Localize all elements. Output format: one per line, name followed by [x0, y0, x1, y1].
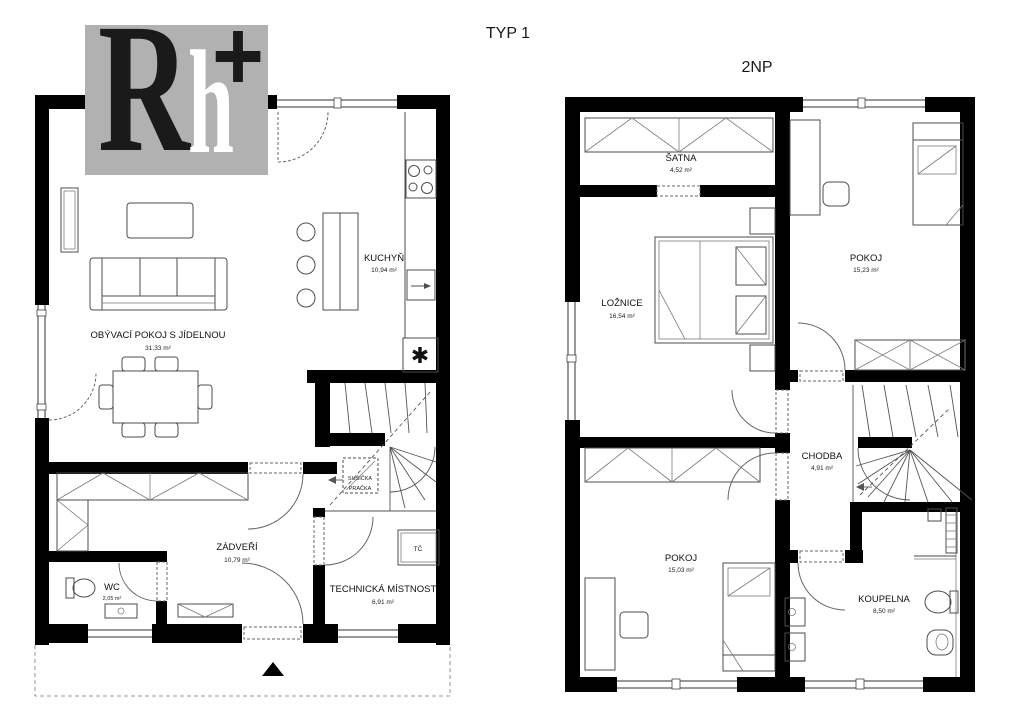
room-label-hall: ZÁDVEŘÍ: [216, 542, 258, 553]
room-label-loznice: LOŽNICE: [601, 298, 642, 309]
kitchen-island: [297, 213, 358, 310]
floor-plan-2np: ŠATNA 4,52 m² LOŽNICE 16,54 m² POKOJ 15,…: [565, 97, 975, 692]
sofa: [90, 258, 227, 310]
rh-plus-logo: R h +: [85, 0, 268, 191]
room-label-koupelna: KOUPELNA: [858, 594, 910, 605]
room-area-pokoj2: 15,03 m²: [668, 567, 694, 574]
washer-dryer-box: SUŠIČKA PRAČKA: [343, 458, 378, 493]
plan-title-typ1: TYP 1: [486, 25, 530, 42]
stair-arrow-icon: [856, 483, 864, 491]
room-area-koupelna: 8,50 m²: [873, 608, 896, 615]
room-label-satna: ŠATNA: [666, 153, 698, 164]
coffee-table: [127, 203, 193, 238]
doors-2np: [657, 186, 845, 610]
room-label-tech: TECHNICKÁ MÍSTNOST: [330, 584, 437, 595]
room-label-pokoj2: POKOJ: [665, 553, 697, 564]
toilet-icon: [66, 578, 95, 598]
plan-title-2np: 2NP: [741, 59, 772, 76]
bathroom-fixtures: [785, 508, 958, 677]
dishwasher-icon: [407, 270, 435, 300]
floorplan-page: SUŠIČKA PRAČKA: [0, 0, 1024, 722]
room-area-chodba: 4,91 m²: [811, 465, 834, 472]
bar-stool-icon: [297, 256, 315, 274]
fireplace-symbol: ✱: [411, 343, 429, 368]
chair: [620, 612, 648, 638]
single-bed: [913, 123, 963, 225]
interior-walls-2np: [580, 97, 975, 692]
room-label-kitchen: KUCHYŇ: [364, 253, 404, 264]
kitchen-counter: [405, 112, 436, 338]
toilet-icon: [925, 591, 958, 613]
bidet-icon: [927, 630, 953, 655]
radiator: [61, 188, 78, 252]
bar-stool-icon: [297, 289, 315, 307]
room-upper-furniture: [790, 120, 965, 370]
room-area-satna: 4,52 m²: [670, 167, 693, 174]
desk: [585, 578, 615, 670]
nightstand: [750, 208, 775, 234]
desk: [790, 120, 820, 215]
floorplan-drawing: SUŠIČKA PRAČKA: [0, 0, 1024, 722]
sink-icon: [105, 604, 137, 618]
single-bed: [723, 563, 775, 671]
towel-radiator-icon: [946, 508, 957, 553]
room-area-pokoj1: 15,23 m²: [853, 267, 879, 274]
stove-icon: [406, 160, 436, 198]
room-label-pokoj1: POKOJ: [850, 253, 882, 264]
fireplace: ✱: [403, 338, 438, 372]
terrace-outline: [35, 645, 450, 696]
double-bed: [655, 208, 775, 371]
room-area-tech: 6,91 m²: [372, 599, 395, 606]
chair: [823, 182, 849, 206]
room-area-living: 31,33 m²: [145, 345, 171, 352]
nightstand: [750, 345, 775, 371]
room-area-kitchen: 10,94 m²: [371, 267, 397, 274]
staircase-1np: SUŠIČKA PRAČKA: [325, 383, 436, 511]
stair-arrow-icon: [328, 476, 336, 484]
heat-pump-box: TČ: [398, 530, 439, 565]
logo-plus-icon: +: [212, 0, 264, 112]
room-area-wc: 2,05 m²: [103, 596, 122, 602]
entrance-arrow-icon: [262, 662, 284, 676]
dryer-label: SUŠIČKA: [348, 475, 372, 482]
room-label-living: OBÝVACÍ POKOJ S JÍDELNOU: [91, 330, 226, 341]
washer-label: PRAČKA: [349, 485, 372, 492]
room-area-hall: 10,79 m²: [224, 557, 250, 564]
heat-pump-label: TČ: [414, 544, 423, 553]
wardrobe-closets: [585, 118, 773, 152]
room-label-chodba: CHODBA: [802, 451, 843, 462]
wardrobe: [855, 340, 965, 370]
logo-letter-r: R: [98, 0, 192, 191]
room-area-loznice: 16,54 m²: [609, 313, 635, 320]
bar-stool-icon: [297, 223, 315, 241]
room-label-wc: WC: [104, 582, 120, 593]
wc-fixtures: [66, 578, 137, 618]
dining-table: [99, 357, 212, 437]
